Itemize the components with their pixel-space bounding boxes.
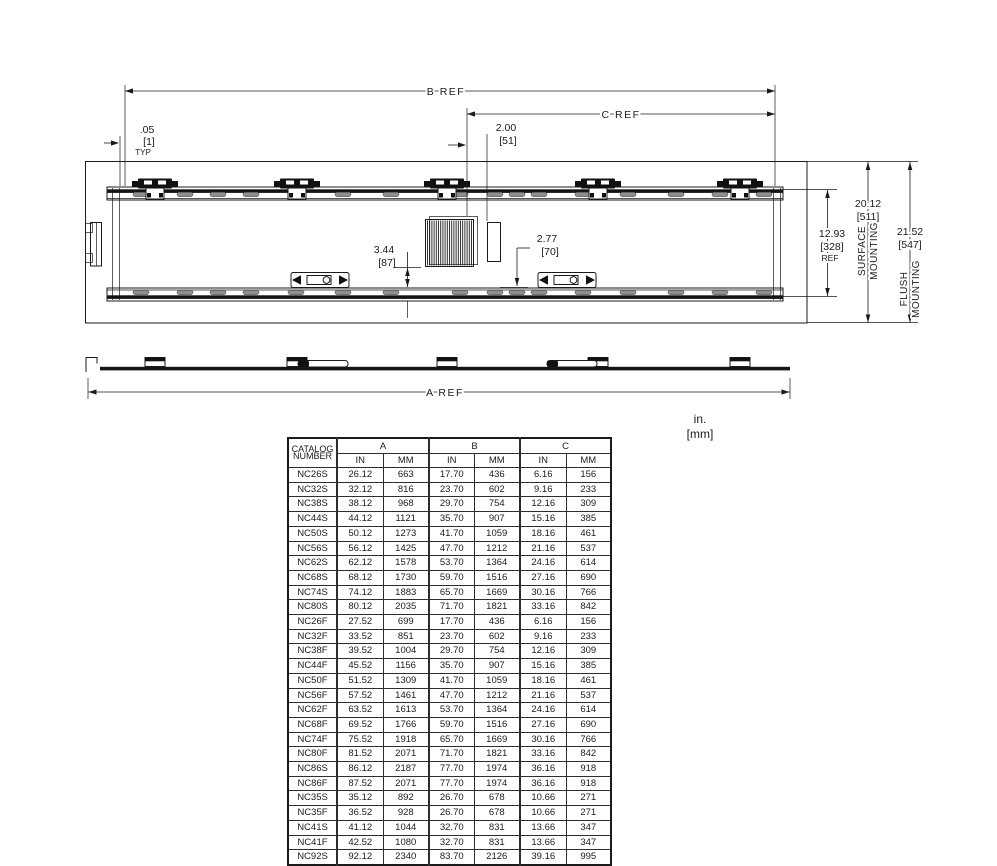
dimension-cell: 47.70 [429,541,474,556]
bottom-rail-slots [133,290,772,294]
flush-mounting-line1: FLUSH [899,272,910,307]
catalog-number-cell: NC44S [288,512,337,527]
table-row: NC32F33.5285123.706029.16233 [288,629,611,644]
dimension-cell: 699 [383,615,429,630]
dimension-cell: 33.52 [337,629,383,644]
dimension-cell: 1883 [383,585,429,600]
page: B REF C REF .05 [1] TYP 2.00 [51] 3.44 [… [0,0,997,866]
dimension-cell: 77.70 [429,762,474,777]
dimension-cell: 1364 [474,556,520,571]
table-row: NC35F36.5292826.7067810.66271 [288,806,611,821]
dimension-cell: 1121 [383,512,429,527]
edge-gap-mm: [1] [143,136,155,148]
rail-slot [210,192,226,196]
table-row: NC62F63.52161353.70136424.16614 [288,703,611,718]
dimension-cell: 9.16 [520,629,566,644]
vent-dim-mm: [87] [378,257,396,269]
dimension-cell: 36.52 [337,806,383,821]
rail-slot [756,290,772,294]
dimension-cell: 53.70 [429,703,474,718]
dimension-cell: 36.16 [520,776,566,791]
dimension-cell: 87.52 [337,776,383,791]
mounting-clip [274,179,320,200]
dimension-cell: 32.70 [429,820,474,835]
catalog-number-cell: NC50S [288,526,337,541]
dimension-cell: 41.70 [429,526,474,541]
dimension-cell: 690 [566,570,611,585]
dimension-cell: 23.70 [429,629,474,644]
dimension-cell: 35.12 [337,791,383,806]
table-row: NC38F39.52100429.7075412.16309 [288,644,611,659]
rail-slot [668,290,684,294]
edge-gap-in: .05 [140,124,155,136]
dimension-cell: 23.70 [429,482,474,497]
catalog-table-body: NC26S26.1266317.704366.16156NC32S32.1281… [288,468,611,865]
table-row: NC68F69.52176659.70151627.16690 [288,717,611,732]
catalog-number-cell: NC26S [288,468,337,483]
dimension-cell: 766 [566,732,611,747]
dimension-cell: 2071 [383,747,429,762]
dimension-cell: 537 [566,541,611,556]
subheader-b-in: IN [429,454,474,468]
dimension-cell: 892 [383,791,429,806]
catalog-number-cell: NC68S [288,570,337,585]
dimension-cell: 12.16 [520,644,566,659]
dimension-cell: 309 [566,644,611,659]
dimension-cell: 15.16 [520,512,566,527]
table-row: NC80S80.12203571.70182133.16842 [288,600,611,615]
dimension-cell: 754 [474,644,520,659]
flush-height-mm: [547] [898,239,921,251]
surface-height-mm: [511] [857,211,880,223]
dimension-cell: 35.70 [429,659,474,674]
catalog-number-cell: NC74S [288,585,337,600]
table-row: NC35S35.1289226.7067810.66271 [288,791,611,806]
dimension-cell: 1080 [383,835,429,850]
dimension-cell: 71.70 [429,600,474,615]
rail-slot [177,192,193,196]
catalog-number-cell: NC62S [288,556,337,571]
subheader-c-mm: MM [566,454,611,468]
dimension-cell: 17.70 [429,615,474,630]
dimension-cell: 10.66 [520,806,566,821]
dimension-cell: 69.52 [337,717,383,732]
dimension-cell: 2071 [383,776,429,791]
table-row: NC38S38.1296829.7075412.16309 [288,497,611,512]
dimension-cell: 74.12 [337,585,383,600]
dimension-cell: 614 [566,556,611,571]
dimension-cell: 36.16 [520,762,566,777]
profile-bar [100,367,790,371]
catalog-number-cell: NC80F [288,747,337,762]
dimension-cell: 1309 [383,673,429,688]
subheader-a-mm: MM [383,454,429,468]
table-row: NC86F87.52207177.70197436.16918 [288,776,611,791]
table-row: NC74F75.52191865.70166930.16766 [288,732,611,747]
dimension-cell: 1821 [474,600,520,615]
dimension-cell: 29.70 [429,644,474,659]
dimension-cell: 39.16 [520,850,566,865]
dimension-cell: 842 [566,747,611,762]
dimension-cell: 83.70 [429,850,474,865]
dimension-cell: 1516 [474,717,520,732]
dimension-cell: 461 [566,526,611,541]
rail-slot [133,290,149,294]
profile-view [86,358,790,373]
group-header-a: A [337,438,429,454]
profile-clips [145,358,750,367]
rail-slot [243,192,259,196]
dimension-cell: 1669 [474,585,520,600]
dimension-cell: 754 [474,497,520,512]
dimension-cell: 461 [566,673,611,688]
subheader-b-mm: MM [474,454,520,468]
rail-slot [383,192,399,196]
dimension-cell: 39.52 [337,644,383,659]
dimension-cell: 18.16 [520,526,566,541]
dimension-cell: 75.52 [337,732,383,747]
dimension-cell: 233 [566,629,611,644]
dimension-cell: 81.52 [337,747,383,762]
dimension-cell: 59.70 [429,717,474,732]
dimension-cell: 1613 [383,703,429,718]
dimension-cell: 928 [383,806,429,821]
dimension-cell: 68.12 [337,570,383,585]
table-row: NC41S41.12104432.7083113.66347 [288,820,611,835]
latch-dim-in: 2.77 [537,233,558,245]
rail-slot [177,290,193,294]
dimension-cell: 12.16 [520,497,566,512]
dimension-cell: 271 [566,791,611,806]
rail-slot [243,290,259,294]
dimension-cell: 1669 [474,732,520,747]
dimension-cell: 1974 [474,762,520,777]
dimension-cell: 1364 [474,703,520,718]
dimension-cell: 1461 [383,688,429,703]
edge-gap-note: TYP [135,148,151,157]
dimension-cell: 436 [474,468,520,483]
dimension-cell: 41.70 [429,673,474,688]
dimension-cell: 995 [566,850,611,865]
dimension-cell: 1730 [383,570,429,585]
dimension-cell: 816 [383,482,429,497]
dimension-cell: 2035 [383,600,429,615]
dimension-cell: 2340 [383,850,429,865]
dimension-cell: 907 [474,659,520,674]
catalog-number-cell: NC41S [288,820,337,835]
catalog-number-cell: NC86F [288,776,337,791]
dimension-cell: 690 [566,717,611,732]
dimension-cell: 32.70 [429,835,474,850]
dimension-labels: B REF C REF .05 [1] TYP 2.00 [51] 3.44 [… [135,86,923,399]
dimension-cell: 53.70 [429,556,474,571]
catalog-number-cell: NC32F [288,629,337,644]
table-row: NC26F27.5269917.704366.16156 [288,615,611,630]
catalog-number-cell: NC26F [288,615,337,630]
dimension-cell: 44.12 [337,512,383,527]
dimension-cell: 29.70 [429,497,474,512]
catalog-number-cell: NC68F [288,717,337,732]
dimension-cell: 65.70 [429,585,474,600]
dimension-cell: 602 [474,482,520,497]
dimension-cell: 1004 [383,644,429,659]
profile-latch [547,361,597,368]
table-row: NC74S74.12188365.70166930.16766 [288,585,611,600]
catalog-number-cell: NC41F [288,835,337,850]
dimension-cell: 831 [474,820,520,835]
subheader-c-in: IN [520,454,566,468]
dimension-cell: 62.12 [337,556,383,571]
profile-clip [730,358,750,367]
dimension-cell: 26.12 [337,468,383,483]
dimension-cell: 26.70 [429,806,474,821]
catalog-number-cell: NC92S [288,850,337,865]
profile-clip [437,358,457,367]
dimension-cell: 77.70 [429,776,474,791]
dimension-cell: 851 [383,629,429,644]
dimension-cell: 271 [566,806,611,821]
table-row: NC41F42.52108032.7083113.66347 [288,835,611,850]
profile-left-hook [86,358,97,373]
dimension-cell: 33.16 [520,600,566,615]
rail-slot [509,192,525,196]
flush-height-in: 21.52 [897,226,923,238]
dimension-cell: 45.52 [337,659,383,674]
vent-hatch [428,221,472,266]
units-note-inches: in. [658,412,742,427]
dimension-cell: 842 [566,600,611,615]
left-bracket [86,223,102,267]
dimension-cell: 30.16 [520,732,566,747]
rail-slot [210,290,226,294]
dimension-cell: 831 [474,835,520,850]
dimension-cell: 537 [566,688,611,703]
dimension-cell: 968 [383,497,429,512]
c-ref-offset-in: 2.00 [496,122,517,134]
rail-slot [620,192,636,196]
table-row: NC68S68.12173059.70151627.16690 [288,570,611,585]
latch [291,273,349,288]
table-row: NC56F57.52146147.70121221.16537 [288,688,611,703]
dimension-cell: 30.16 [520,585,566,600]
dimension-cell: 2187 [383,762,429,777]
dimension-cell: 233 [566,482,611,497]
dimension-cell: 63.52 [337,703,383,718]
dimension-cell: 92.12 [337,850,383,865]
dimension-cell: 1578 [383,556,429,571]
table-row: NC44F45.52115635.7090715.16385 [288,659,611,674]
dimension-cell: 1044 [383,820,429,835]
dimension-cell: 9.16 [520,482,566,497]
dimension-cell: 41.12 [337,820,383,835]
dimension-cell: 6.16 [520,468,566,483]
dimension-cell: 1516 [474,570,520,585]
catalog-number-cell: NC56S [288,541,337,556]
front-dimensions [104,85,918,323]
dimension-cell: 918 [566,762,611,777]
dimension-cell: 907 [474,512,520,527]
a-ref-label: A REF [426,387,464,399]
c-ref-offset-mm: [51] [499,135,517,147]
table-row: NC56S56.12142547.70121221.16537 [288,541,611,556]
b-ref-label: B REF [427,86,465,98]
profile-latch [298,361,348,368]
rail-slot [509,290,525,294]
rail-slot [712,290,728,294]
catalog-dimension-table: CATALOG NUMBER A B C IN MM IN MM IN MM N… [287,437,612,866]
dimension-cell: 918 [566,776,611,791]
surface-height-in: 20.12 [855,198,881,210]
inner-height-note: REF [822,253,839,263]
dimension-cell: 385 [566,659,611,674]
surface-mounting-line1: SURFACE [857,226,868,276]
table-row: NC86S86.12218777.70197436.16918 [288,762,611,777]
panel-end-plates [113,188,781,300]
bottom-rail [107,288,783,301]
dimension-cell: 678 [474,806,520,821]
dimension-cell: 347 [566,835,611,850]
rail-slot [620,290,636,294]
rail-slot [531,290,547,294]
bottom-rail-band [107,295,783,299]
dimension-cell: 2126 [474,850,520,865]
front-view [86,162,808,324]
catalog-number-header: CATALOG NUMBER [288,438,337,468]
dimension-cell: 1212 [474,541,520,556]
profile-clip [145,358,165,367]
table-row: NC44S44.12112135.7090715.16385 [288,512,611,527]
dimension-cell: 27.52 [337,615,383,630]
dimension-cell: 21.16 [520,688,566,703]
rail-slot [712,192,728,196]
dimension-cell: 42.52 [337,835,383,850]
dimension-cell: 51.52 [337,673,383,688]
dimension-cell: 1156 [383,659,429,674]
catalog-number-cell: NC80S [288,600,337,615]
dimension-cell: 38.12 [337,497,383,512]
dimension-cell: 10.66 [520,791,566,806]
catalog-number-cell: NC86S [288,762,337,777]
latch-dim-mm: [70] [541,246,559,258]
dimension-cell: 35.70 [429,512,474,527]
inner-height-mm: [328] [820,241,843,253]
dimension-cell: 614 [566,703,611,718]
dimension-cell: 1974 [474,776,520,791]
dimension-cell: 27.16 [520,570,566,585]
table-row: NC92S92.12234083.70212639.16995 [288,850,611,865]
dimension-cell: 766 [566,585,611,600]
table-row: NC26S26.1266317.704366.16156 [288,468,611,483]
table-row: NC50F51.52130941.70105918.16461 [288,673,611,688]
dimension-cell: 436 [474,615,520,630]
table-row: NC62S62.12157853.70136424.16614 [288,556,611,571]
rail-slot [575,290,591,294]
units-note: in. [mm] [658,412,742,442]
catalog-header-line2: NUMBER [293,451,332,461]
c-ref-label: C REF [602,109,641,121]
dimension-cell: 18.16 [520,673,566,688]
dimension-cell: 6.16 [520,615,566,630]
catalog-number-cell: NC38S [288,497,337,512]
group-header-c: C [520,438,611,454]
dimension-cell: 56.12 [337,541,383,556]
rail-slot [531,192,547,196]
dimension-cell: 80.12 [337,600,383,615]
dimension-cell: 33.16 [520,747,566,762]
dimension-cell: 156 [566,615,611,630]
dimension-cell: 24.16 [520,556,566,571]
rail-slot [288,290,304,294]
surface-mounting-line2: MOUNTING [869,222,880,280]
dimension-cell: 602 [474,629,520,644]
dimension-cell: 13.66 [520,835,566,850]
rail-slot [668,192,684,196]
dimension-cell: 1766 [383,717,429,732]
dimension-cell: 663 [383,468,429,483]
dimension-cell: 309 [566,497,611,512]
dimension-cell: 1821 [474,747,520,762]
dimension-cell: 24.16 [520,703,566,718]
dimension-cell: 17.70 [429,468,474,483]
dimension-cell: 678 [474,791,520,806]
dimension-cell: 15.16 [520,659,566,674]
rail-slot [335,192,351,196]
table-row: NC50S50.12127341.70105918.16461 [288,526,611,541]
rail-slot [383,290,399,294]
component-rect [488,223,501,262]
dimension-cell: 65.70 [429,732,474,747]
vent-dim-in: 3.44 [374,244,395,256]
dimension-cell: 47.70 [429,688,474,703]
dimension-cell: 26.70 [429,791,474,806]
catalog-number-cell: NC74F [288,732,337,747]
dimension-cell: 347 [566,820,611,835]
dimension-cell: 57.52 [337,688,383,703]
inner-height-in: 12.93 [819,228,845,240]
dimension-cell: 71.70 [429,747,474,762]
rail-slot [335,290,351,294]
rail-slot [452,290,468,294]
dimension-cell: 1918 [383,732,429,747]
dimension-cell: 50.12 [337,526,383,541]
group-header-b: B [429,438,520,454]
table-row: NC80F81.52207171.70182133.16842 [288,747,611,762]
dimension-cell: 1059 [474,673,520,688]
dimension-cell: 1425 [383,541,429,556]
catalog-number-cell: NC35S [288,791,337,806]
dimension-cell: 27.16 [520,717,566,732]
front-latches [291,273,596,288]
rail-slot [487,290,503,294]
rail-slot [756,192,772,196]
dimension-cell: 13.66 [520,820,566,835]
catalog-number-cell: NC35F [288,806,337,821]
dimension-cell: 59.70 [429,570,474,585]
subheader-a-in: IN [337,454,383,468]
catalog-number-cell: NC32S [288,482,337,497]
dimension-cell: 21.16 [520,541,566,556]
catalog-number-cell: NC38F [288,644,337,659]
latch [538,273,596,288]
flush-mounting-line2: MOUNTING [911,260,922,318]
table-row: NC32S32.1281623.706029.16233 [288,482,611,497]
dimension-cell: 1273 [383,526,429,541]
catalog-number-cell: NC50F [288,673,337,688]
dimension-cell: 1059 [474,526,520,541]
dimension-cell: 86.12 [337,762,383,777]
dimension-cell: 156 [566,468,611,483]
catalog-number-cell: NC44F [288,659,337,674]
